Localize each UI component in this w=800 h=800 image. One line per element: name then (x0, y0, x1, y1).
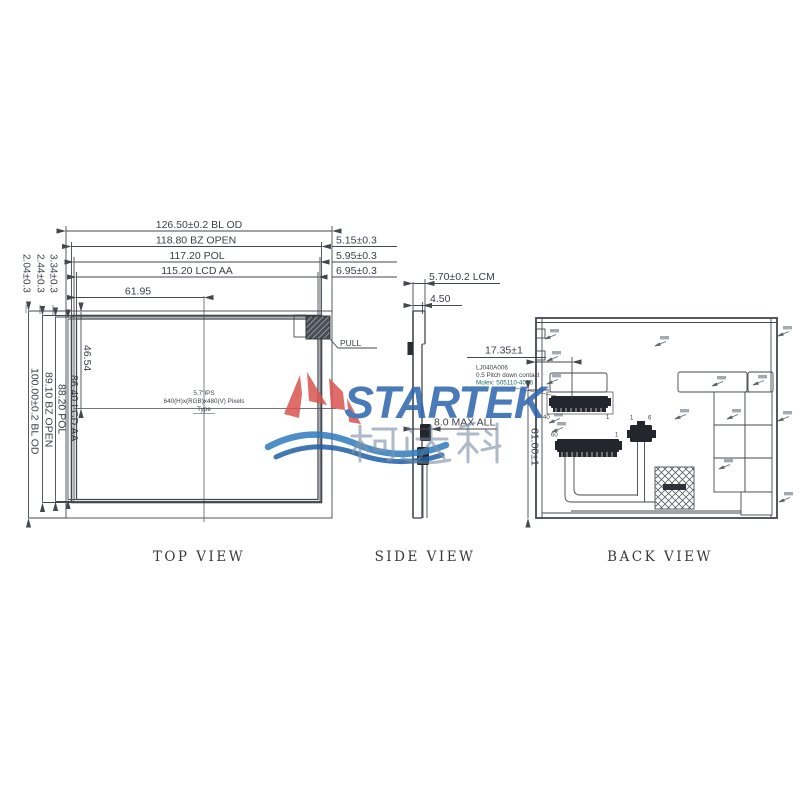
dim-aa-width: 115.20 LCD AA (161, 265, 233, 277)
lower-pin-last: 1 (615, 433, 619, 439)
dim-pol-height: 88.20 POL (56, 384, 68, 434)
startek-watermark: STARTEK (268, 372, 550, 463)
tape-rect-middle (678, 372, 747, 392)
dim-bl-od-width: 126.50±0.2 BL OD (156, 219, 243, 231)
lcd-module-drawing-page: PULL 5.7"IPS 640(H)x(RGB)x480(V) Pixels … (0, 0, 800, 800)
dim-pol-width: 117.20 POL (169, 250, 224, 262)
lower-pin-first: 60 (551, 433, 558, 439)
dim-gap-bz: 5.15±0.3 (336, 235, 377, 247)
left-tab-2 (536, 351, 545, 360)
drawing-canvas: PULL 5.7"IPS 640(H)x(RGB)x480(V) Pixels … (0, 0, 800, 800)
side-pull-tab (408, 342, 414, 355)
back-view: 40 1 60 1 1 6 (528, 318, 793, 518)
dim-top-gap-aa: 3.34±0.3 (48, 254, 59, 293)
tolerance-leader-lines (26, 305, 53, 316)
dim-bz-open-height: 89.10 BZ OPEN (43, 372, 55, 447)
upper-connector: 40 1 (543, 392, 613, 421)
dim-gap-aa: 6.95±0.3 (336, 265, 377, 277)
note-part-number: LJ040A006 (476, 365, 508, 372)
hatched-pad-label-block (663, 484, 686, 490)
left-dimensions: 100.00±0.2 BL OD 89.10 BZ OPEN 88.20 POL… (21, 254, 94, 518)
top-view: PULL 5.7"IPS 640(H)x(RGB)x480(V) Pixels … (21, 219, 398, 522)
dim-lcm-thickness: 5.70±0.2 LCM (429, 271, 495, 283)
side-view-caption: SIDE VIEW (375, 549, 476, 565)
top-dimensions: 126.50±0.2 BL OD 118.80 BZ OPEN 5.15±0.3… (66, 219, 397, 298)
lower-connector: 60 1 (551, 433, 622, 458)
fpc-exit-slot (294, 315, 306, 337)
dim-bz-open-width: 118.80 BZ OPEN (156, 235, 236, 247)
bl-pin-first: 1 (630, 416, 634, 422)
dim-top-gap-bz: 2.04±0.3 (21, 254, 32, 293)
dim-gap-pol: 5.95±0.3 (336, 250, 377, 262)
side-extension-lines (413, 279, 425, 314)
backlight-connector: 1 6 (627, 416, 656, 443)
dim-panel-thickness: 4.50 (430, 293, 451, 305)
tape-grid-right (714, 392, 772, 515)
dim-aa-height: 86.40 LCD AA (68, 375, 80, 442)
panel-type-note: Type (197, 406, 211, 413)
bl-pin-last: 6 (648, 416, 652, 422)
dim-bl-od-height: 100.00±0.2 BL OD (29, 368, 41, 455)
dim-connector-height: 61.00±1 (529, 428, 541, 466)
panel-size-note: 5.7"IPS (193, 390, 214, 397)
dim-center-vert-offset: 46.54 (81, 345, 93, 371)
upper-connector-body (551, 396, 608, 408)
back-view-caption: BACK VIEW (607, 549, 713, 565)
left-tab-1 (536, 329, 545, 338)
backlight-connector-body (630, 425, 652, 442)
pull-label: PULL (340, 338, 362, 348)
panel-resolution-note: 640(H)x(RGB)x480(V) Pixels (164, 398, 245, 405)
top-view-caption: TOP VIEW (153, 549, 245, 565)
upper-pin-last: 1 (606, 415, 610, 421)
dim-center-offset: 61.95 (125, 286, 151, 298)
brand-wordmark: STARTEK (344, 377, 550, 428)
dim-top-gap-pol: 2.44±0.3 (35, 254, 46, 293)
lower-connector-body (557, 439, 619, 452)
dim-fpc-offset: 17.35±1 (485, 345, 523, 357)
